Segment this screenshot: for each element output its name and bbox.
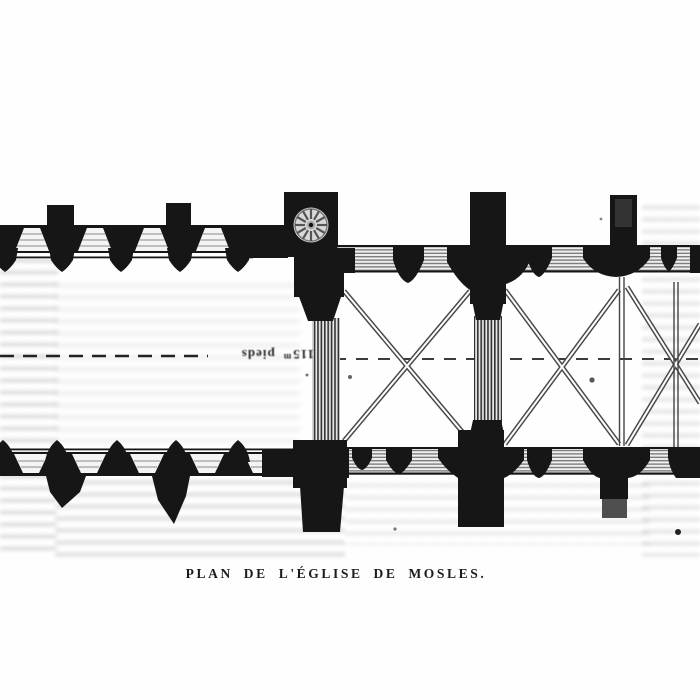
nave-north-wall	[0, 203, 288, 272]
buttress	[152, 476, 190, 524]
spiral-stair-icon	[294, 208, 329, 243]
scanned-page: 115mpieds PLAN DE L'ÉGLISE DE MOSLES.	[0, 0, 700, 700]
nave-south-wall	[0, 440, 296, 524]
west-crossing-arch	[262, 255, 347, 532]
vault-ribs	[344, 277, 700, 447]
scale-value: 115	[292, 347, 314, 362]
axis-centerline	[0, 356, 700, 359]
scale-unit: pieds	[241, 347, 275, 362]
scale-sup: m	[283, 352, 292, 362]
stair-turret	[284, 192, 338, 257]
scale-annotation: 115mpieds	[198, 336, 314, 362]
figure-caption: PLAN DE L'ÉGLISE DE MOSLES.	[0, 566, 686, 582]
buttress	[47, 205, 74, 226]
buttress	[46, 476, 86, 508]
church-floor-plan-figure	[0, 0, 700, 700]
buttress	[166, 203, 191, 226]
